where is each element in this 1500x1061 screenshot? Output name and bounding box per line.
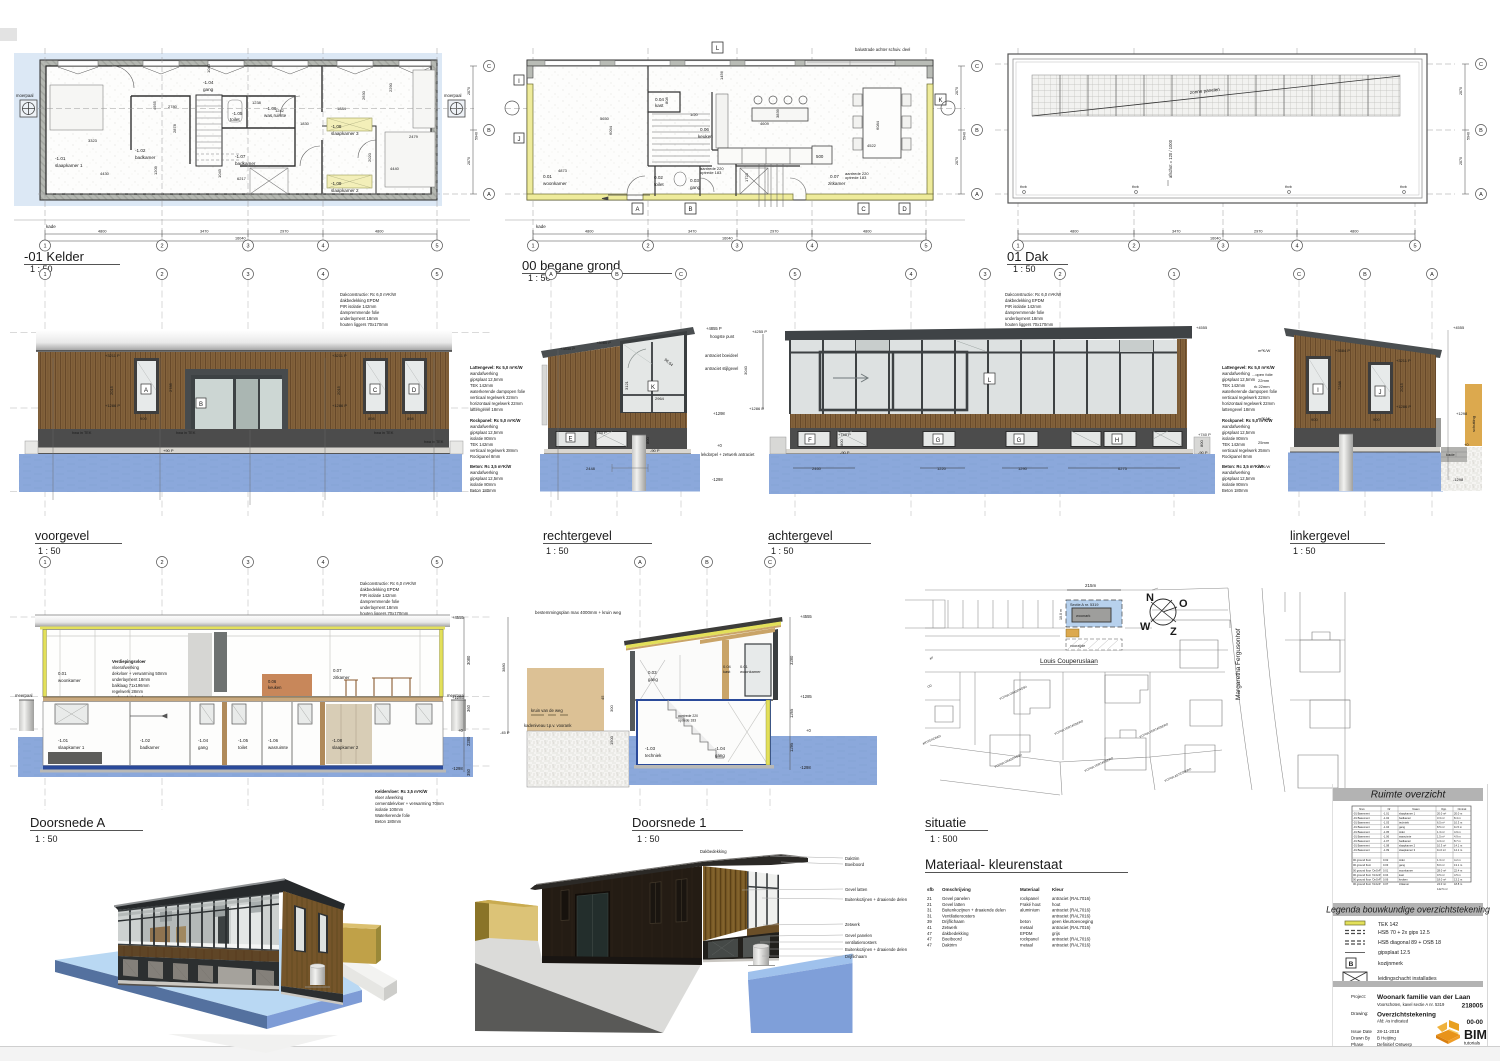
svg-text:B: B bbox=[705, 560, 709, 566]
svg-text:-1.06: -1.06 bbox=[1383, 834, 1390, 838]
svg-text:wandafwerking: wandafwerking bbox=[1222, 371, 1251, 376]
svg-text:verticaal regelwerk 22mm: verticaal regelwerk 22mm bbox=[470, 395, 518, 400]
svg-text:4.3 m²: 4.3 m² bbox=[1437, 839, 1445, 843]
svg-text:gang: gang bbox=[715, 753, 725, 758]
svg-text:antraciet (RAL7016): antraciet (RAL7016) bbox=[1052, 913, 1091, 918]
svg-text:1: 1 bbox=[1172, 272, 1175, 278]
svg-text:39: 39 bbox=[927, 919, 932, 924]
svg-text:tutorials: tutorials bbox=[1464, 1041, 1481, 1046]
svg-text:afschot = 120 / 1000: afschot = 120 / 1000 bbox=[1168, 139, 1173, 178]
svg-text:Louis Couperuslaan: Louis Couperuslaan bbox=[1040, 658, 1098, 665]
svg-text:0.02: 0.02 bbox=[654, 175, 663, 180]
svg-text:+3584 P: +3584 P bbox=[1335, 348, 1350, 353]
svg-text:HSB diagonal 89 + OSB 18: HSB diagonal 89 + OSB 18 bbox=[1378, 940, 1441, 946]
svg-text:badkamer: badkamer bbox=[135, 155, 156, 160]
svg-text:+0: +0 bbox=[806, 728, 811, 733]
svg-text:4609: 4609 bbox=[760, 121, 770, 126]
svg-text:linkergevel: linkergevel bbox=[1290, 529, 1350, 543]
svg-text:10.0 m: 10.0 m bbox=[1059, 609, 1063, 620]
svg-text:keuken: keuken bbox=[268, 685, 282, 690]
svg-text:isolatie 80mm: isolatie 80mm bbox=[1222, 482, 1248, 487]
svg-text:slaapkamer 2: slaapkamer 2 bbox=[331, 188, 359, 193]
svg-text:142.5 m²: 142.5 m² bbox=[1437, 887, 1448, 891]
svg-text:K: K bbox=[651, 385, 655, 391]
svg-text:toilet: toilet bbox=[230, 117, 240, 122]
svg-text:Dakconstructie: Rc 6,0 m²K/W: Dakconstructie: Rc 6,0 m²K/W bbox=[360, 581, 416, 586]
svg-text:5940: 5940 bbox=[1467, 132, 1471, 140]
svg-text:2: 2 bbox=[160, 244, 163, 250]
svg-text:900: 900 bbox=[1373, 417, 1380, 422]
svg-text:1456: 1456 bbox=[719, 70, 724, 80]
svg-text:badkamer: badkamer bbox=[1399, 839, 1411, 843]
svg-text:vloerafwerking: vloerafwerking bbox=[112, 665, 140, 670]
svg-text:5: 5 bbox=[435, 560, 438, 566]
svg-text:47: 47 bbox=[927, 942, 932, 947]
svg-text:-1.09: -1.09 bbox=[331, 181, 342, 186]
svg-text:Z: Z bbox=[1170, 626, 1177, 638]
svg-text:antraciet (RAL7016): antraciet (RAL7016) bbox=[1052, 925, 1091, 930]
svg-text:G: G bbox=[936, 438, 941, 444]
svg-text:4440: 4440 bbox=[390, 166, 400, 171]
svg-text:EPDM: EPDM bbox=[1020, 931, 1033, 936]
svg-text:TEK 142mm: TEK 142mm bbox=[1222, 383, 1246, 388]
svg-text:1.3 m²: 1.3 m² bbox=[1437, 830, 1445, 834]
svg-text:kade: kade bbox=[46, 224, 56, 229]
svg-text:2870: 2870 bbox=[955, 87, 959, 95]
svg-text:dakbedekking EPDM: dakbedekking EPDM bbox=[360, 587, 400, 592]
svg-text:Boeiboord: Boeiboord bbox=[845, 862, 865, 867]
svg-text:moerpaal: moerpaal bbox=[16, 93, 34, 98]
svg-text:-1298: -1298 bbox=[712, 477, 723, 482]
svg-text:Drawing:: Drawing: bbox=[1351, 1011, 1368, 1016]
svg-text:gang: gang bbox=[648, 677, 658, 682]
svg-text:3470: 3470 bbox=[688, 230, 696, 234]
svg-text:hoogste punt: hoogste punt bbox=[710, 334, 735, 339]
svg-text:0.03: 0.03 bbox=[1383, 863, 1389, 867]
svg-text:m²K/W: m²K/W bbox=[1258, 464, 1270, 469]
svg-text:gang: gang bbox=[1399, 826, 1405, 829]
svg-text:-01 Basement: -01 Basement bbox=[1353, 816, 1370, 820]
svg-text:dampremmende folie: dampremmende folie bbox=[340, 310, 380, 315]
svg-text:Drijflichaam: Drijflichaam bbox=[845, 954, 867, 959]
svg-text:1209: 1209 bbox=[153, 165, 158, 175]
svg-text:dampremmende folie: dampremmende folie bbox=[360, 599, 400, 604]
svg-text:-01 Basement: -01 Basement bbox=[1353, 839, 1370, 843]
svg-text:00 ground floor 'OnGrF': 00 ground floor 'OnGrF' bbox=[1353, 873, 1382, 877]
svg-text:11.5 m: 11.5 m bbox=[1454, 825, 1463, 829]
svg-text:2870: 2870 bbox=[1459, 87, 1463, 95]
svg-text:beton: beton bbox=[1020, 919, 1031, 924]
svg-text:-1.02: -1.02 bbox=[140, 738, 151, 743]
svg-text:11.0 m²: 11.0 m² bbox=[1437, 848, 1446, 852]
svg-text:voorzijde: voorzijde bbox=[1070, 644, 1085, 648]
svg-text:Omschrijving: Omschrijving bbox=[942, 887, 971, 892]
svg-text:2964: 2964 bbox=[655, 396, 665, 401]
svg-text:+1286 P: +1286 P bbox=[105, 403, 120, 408]
svg-text:aluminium: aluminium bbox=[1020, 908, 1040, 913]
svg-text:wasruimte: wasruimte bbox=[1399, 834, 1412, 838]
svg-text:2: 2 bbox=[160, 560, 163, 566]
svg-text:2280: 2280 bbox=[466, 736, 471, 746]
svg-text:rechtergevel: rechtergevel bbox=[543, 529, 612, 543]
svg-text:aantrede 220: aantrede 220 bbox=[678, 714, 698, 718]
svg-text:13.2 m: 13.2 m bbox=[1454, 878, 1463, 882]
svg-text:verticaal regelwerk 28mm: verticaal regelwerk 28mm bbox=[470, 448, 518, 453]
svg-text:-1.04: -1.04 bbox=[1383, 825, 1390, 829]
svg-text:1238: 1238 bbox=[252, 100, 262, 105]
svg-text:2970: 2970 bbox=[280, 230, 288, 234]
svg-text:-1.07: -1.07 bbox=[1383, 839, 1390, 843]
svg-text:2630: 2630 bbox=[361, 90, 366, 100]
svg-text:01 Dak: 01 Dak bbox=[1007, 249, 1049, 264]
svg-text:1 : 50: 1 : 50 bbox=[546, 546, 569, 556]
svg-text:antraciet boeideel: antraciet boeideel bbox=[705, 353, 738, 358]
svg-text:Phase: Phase bbox=[1351, 1042, 1364, 1047]
svg-text:+0: +0 bbox=[458, 728, 463, 733]
svg-text:-1298: -1298 bbox=[800, 765, 811, 770]
svg-text:rockpanel: rockpanel bbox=[1020, 896, 1039, 901]
svg-text:Dakconstructie: Rc 6,0 m²K/W: Dakconstructie: Rc 6,0 m²K/W bbox=[1005, 292, 1061, 297]
svg-text:-1.02: -1.02 bbox=[1383, 816, 1390, 820]
svg-text:grijs: grijs bbox=[1052, 931, 1060, 936]
svg-text:900: 900 bbox=[1311, 417, 1318, 422]
svg-text:A: A bbox=[1479, 192, 1483, 198]
svg-text:Fraké hout: Fraké hout bbox=[1020, 902, 1041, 907]
svg-text:-1.05: -1.05 bbox=[232, 111, 243, 116]
svg-text:6084: 6084 bbox=[875, 120, 880, 130]
svg-text:0.01: 0.01 bbox=[58, 671, 67, 676]
svg-text:28.0 m²: 28.0 m² bbox=[1437, 868, 1446, 872]
svg-text:thvb: thvb bbox=[1400, 185, 1407, 189]
svg-text:metaal: metaal bbox=[1020, 942, 1033, 947]
svg-text:B: B bbox=[615, 272, 619, 278]
svg-text:0.06: 0.06 bbox=[268, 679, 277, 684]
svg-text:4: 4 bbox=[1295, 244, 1298, 250]
svg-text:-1.08: -1.08 bbox=[332, 738, 343, 743]
svg-text:badkamer: badkamer bbox=[1399, 816, 1411, 820]
svg-text:hout: hout bbox=[1052, 902, 1061, 907]
svg-text:1 : 50: 1 : 50 bbox=[637, 834, 660, 844]
svg-text:A: A bbox=[975, 192, 979, 198]
svg-text:waterkerende dampopen folie: waterkerende dampopen folie bbox=[470, 389, 526, 394]
svg-text:techniek: techniek bbox=[1399, 821, 1410, 825]
svg-text:meerpaal: meerpaal bbox=[15, 693, 33, 698]
svg-text:2: 2 bbox=[646, 244, 649, 250]
svg-text:3470: 3470 bbox=[1172, 230, 1180, 234]
svg-text:D: D bbox=[902, 207, 907, 213]
svg-text:antraciet stijlgevel: antraciet stijlgevel bbox=[705, 366, 738, 371]
svg-text:-1.04: -1.04 bbox=[198, 738, 209, 743]
svg-text:8.7 m: 8.7 m bbox=[1454, 839, 1461, 843]
svg-text:3: 3 bbox=[246, 244, 249, 250]
svg-text:1723: 1723 bbox=[744, 172, 749, 182]
svg-text:OD: OD bbox=[927, 683, 934, 689]
svg-text:0.06: 0.06 bbox=[700, 127, 709, 132]
svg-text:-1298: -1298 bbox=[452, 766, 463, 771]
svg-text:28-11-2018: 28-11-2018 bbox=[1377, 1029, 1400, 1034]
svg-text:Waterkerende folie: Waterkerende folie bbox=[375, 813, 411, 818]
svg-text:ARTISTICRAD: ARTISTICRAD bbox=[922, 733, 943, 745]
svg-text:K: K bbox=[938, 98, 942, 104]
svg-text:C: C bbox=[679, 272, 683, 278]
svg-text:techniek: techniek bbox=[645, 753, 662, 758]
svg-text:800: 800 bbox=[645, 437, 650, 444]
svg-text:8.4 m: 8.4 m bbox=[1454, 816, 1461, 820]
svg-text:-1.05: -1.05 bbox=[1383, 830, 1390, 834]
svg-text:VOTGA ASTESSERO: VOTGA ASTESSERO bbox=[1164, 767, 1193, 783]
svg-text:18.0 m²: 18.0 m² bbox=[1437, 878, 1446, 882]
svg-text:moerpaal: moerpaal bbox=[444, 93, 462, 98]
svg-text:rk 22mm: rk 22mm bbox=[1254, 384, 1270, 389]
svg-text:thvb: thvb bbox=[1132, 185, 1139, 189]
svg-text:slaapkamer 1: slaapkamer 1 bbox=[55, 163, 83, 168]
svg-text:Rockpanel 8mm: Rockpanel 8mm bbox=[1222, 454, 1253, 459]
svg-text:underlayment 18mm: underlayment 18mm bbox=[112, 677, 151, 682]
svg-text:gang: gang bbox=[690, 185, 701, 190]
svg-text:optrede 183: optrede 183 bbox=[678, 719, 696, 723]
svg-text:+1286 P: +1286 P bbox=[749, 406, 764, 411]
svg-text:1 : 500: 1 : 500 bbox=[930, 834, 958, 844]
svg-text:J: J bbox=[1379, 390, 1382, 396]
svg-text:3: 3 bbox=[735, 244, 738, 250]
svg-text:898: 898 bbox=[407, 416, 414, 421]
svg-text:2870: 2870 bbox=[1459, 157, 1463, 165]
svg-text:+3211 P: +3211 P bbox=[105, 353, 120, 358]
svg-text:4800: 4800 bbox=[585, 230, 593, 234]
svg-text:thvb: thvb bbox=[1020, 185, 1027, 189]
svg-text:balustrade achter schuiv. deel: balustrade achter schuiv. deel bbox=[855, 47, 910, 52]
svg-text:VOTGA VERTASSERO: VOTGA VERTASSERO bbox=[1139, 722, 1170, 739]
svg-text:balklaag 71x196mm: balklaag 71x196mm bbox=[112, 683, 150, 688]
svg-text:-01 Basement: -01 Basement bbox=[1353, 844, 1370, 848]
svg-text:4430: 4430 bbox=[100, 171, 110, 176]
svg-text:Lattengevel: Rc 5,0 m²K/W: Lattengevel: Rc 5,0 m²K/W bbox=[470, 365, 523, 370]
svg-text:+90 P: +90 P bbox=[163, 448, 174, 453]
svg-text:Gevel latten: Gevel latten bbox=[942, 902, 966, 907]
svg-text:lattengevel 18mm: lattengevel 18mm bbox=[470, 407, 504, 412]
svg-text:+3830 P: +3830 P bbox=[560, 346, 575, 351]
svg-text:toilet: toilet bbox=[1399, 830, 1405, 834]
svg-text:4800: 4800 bbox=[1070, 230, 1078, 234]
svg-text:47: 47 bbox=[927, 931, 932, 936]
svg-text:N: N bbox=[1146, 592, 1154, 604]
svg-text:2970: 2970 bbox=[770, 230, 778, 234]
svg-text:+1298: +1298 bbox=[713, 411, 725, 416]
svg-text:1 : 50: 1 : 50 bbox=[35, 834, 58, 844]
svg-text:+1285: +1285 bbox=[452, 695, 464, 700]
svg-text:dakbedekking EPDM: dakbedekking EPDM bbox=[1005, 298, 1045, 303]
svg-text:Gevel panelen: Gevel panelen bbox=[942, 896, 970, 901]
svg-text:22mm: 22mm bbox=[1258, 378, 1270, 383]
svg-text:optrede 183: optrede 183 bbox=[700, 170, 722, 175]
svg-text:badkamer: badkamer bbox=[140, 745, 160, 750]
svg-text:O: O bbox=[1179, 598, 1188, 610]
svg-text:900: 900 bbox=[140, 416, 147, 421]
svg-text:gipsplaat 12,5mm: gipsplaat 12,5mm bbox=[1222, 430, 1256, 435]
svg-text:A: A bbox=[1430, 272, 1434, 278]
svg-text:-90 P: -90 P bbox=[840, 450, 850, 455]
svg-text:Ruimte overzicht: Ruimte overzicht bbox=[1371, 790, 1447, 801]
svg-text:0.07: 0.07 bbox=[830, 174, 839, 179]
svg-text:woonkamer: woonkamer bbox=[1399, 868, 1413, 872]
svg-text:2020: 2020 bbox=[367, 152, 372, 162]
svg-text:woonkamer: woonkamer bbox=[740, 669, 761, 674]
svg-text:C: C bbox=[861, 207, 866, 213]
svg-text:5: 5 bbox=[435, 272, 438, 278]
svg-text:hwa in TEK: hwa in TEK bbox=[72, 431, 92, 435]
svg-text:+4255 P: +4255 P bbox=[752, 329, 767, 334]
svg-text:5940: 5940 bbox=[963, 132, 967, 140]
svg-text:Daktrim: Daktrim bbox=[942, 942, 957, 947]
svg-text:Verdiepingsvloer: Verdiepingsvloer bbox=[112, 659, 146, 664]
svg-text:Naam: Naam bbox=[1412, 807, 1420, 811]
svg-text:2015: 2015 bbox=[1399, 382, 1404, 392]
svg-text:F: F bbox=[808, 438, 812, 444]
svg-text:wandafwerking: wandafwerking bbox=[470, 424, 499, 429]
svg-text:Daktrim: Daktrim bbox=[845, 856, 860, 861]
svg-text:0.04: 0.04 bbox=[655, 97, 664, 102]
svg-text:C: C bbox=[768, 560, 772, 566]
svg-text:gipsplaat 12,5mm: gipsplaat 12,5mm bbox=[470, 476, 504, 481]
svg-text:-1.08: -1.08 bbox=[331, 124, 342, 129]
svg-text:Kleur: Kleur bbox=[1052, 887, 1064, 892]
svg-text:00 ground floor: 00 ground floor bbox=[1353, 858, 1371, 862]
svg-text:dakbedekking: dakbedekking bbox=[942, 931, 969, 936]
svg-text:16040: 16040 bbox=[722, 237, 733, 241]
svg-text:gipsplaat 12,5mm: gipsplaat 12,5mm bbox=[470, 377, 504, 382]
svg-text:Sectie A nr. 5319: Sectie A nr. 5319 bbox=[1070, 603, 1099, 607]
svg-text:Project:: Project: bbox=[1351, 994, 1366, 999]
svg-text:Buitenkozijnen + draaiende del: Buitenkozijnen + draaiende delen bbox=[845, 897, 908, 902]
svg-text:+4555: +4555 bbox=[1453, 325, 1465, 330]
svg-text:Dakconstructie: Rc 6,0 m²K/W: Dakconstructie: Rc 6,0 m²K/W bbox=[340, 292, 396, 297]
svg-text:VOTGA VERTASSERO: VOTGA VERTASSERO bbox=[1054, 719, 1085, 736]
svg-text:1220: 1220 bbox=[937, 466, 947, 471]
svg-text:A: A bbox=[638, 560, 642, 566]
svg-text:kade: kade bbox=[1446, 452, 1455, 457]
svg-text:kade: kade bbox=[536, 224, 546, 229]
svg-text:kadeniveau t.p.v. voorank: kadeniveau t.p.v. voorank bbox=[524, 723, 572, 728]
svg-text:360: 360 bbox=[466, 704, 471, 712]
svg-text:4522: 4522 bbox=[867, 143, 877, 148]
svg-text:wasruimte: wasruimte bbox=[268, 745, 289, 750]
svg-text:metaal: metaal bbox=[1020, 925, 1033, 930]
svg-text:B: B bbox=[199, 402, 203, 408]
svg-text:+0: +0 bbox=[717, 443, 722, 448]
svg-text:2: 2 bbox=[1132, 244, 1135, 250]
svg-text:-01 Basement: -01 Basement bbox=[1353, 848, 1370, 852]
svg-text:4: 4 bbox=[321, 560, 324, 566]
svg-text:PIR isolatie 142mm: PIR isolatie 142mm bbox=[340, 304, 377, 309]
svg-text:J: J bbox=[518, 137, 521, 143]
svg-text:1 : 50: 1 : 50 bbox=[771, 546, 794, 556]
svg-text:-01 Basement: -01 Basement bbox=[1353, 821, 1370, 825]
svg-text:-1.03: -1.03 bbox=[1383, 821, 1390, 825]
svg-text:woonkamer: woonkamer bbox=[543, 181, 567, 186]
svg-text:Overzichtstekening: Overzichtstekening bbox=[1377, 1012, 1436, 1019]
svg-text:898: 898 bbox=[368, 416, 375, 421]
svg-text:D: D bbox=[412, 388, 417, 394]
svg-text:wandafwerking: wandafwerking bbox=[1222, 424, 1251, 429]
svg-text:3470: 3470 bbox=[200, 230, 208, 234]
svg-text:6217: 6217 bbox=[237, 176, 247, 181]
svg-text:A: A bbox=[144, 388, 148, 394]
svg-text:0.01: 0.01 bbox=[543, 174, 552, 179]
svg-text:Opp.: Opp. bbox=[1441, 807, 1447, 811]
svg-text:dekvloer + verwarming 50mm: dekvloer + verwarming 50mm bbox=[112, 671, 168, 676]
svg-text:Definitief Ontwerp: Definitief Ontwerp bbox=[1377, 1042, 1412, 1047]
svg-text:0.04: 0.04 bbox=[1383, 873, 1389, 877]
svg-text:+4555: +4555 bbox=[800, 614, 812, 619]
svg-text:underlayment 18mm: underlayment 18mm bbox=[360, 605, 399, 610]
svg-text:...open folie: ...open folie bbox=[1252, 372, 1273, 377]
svg-text:3323: 3323 bbox=[88, 138, 98, 143]
svg-text:regelwerk 28mm: regelwerk 28mm bbox=[112, 689, 143, 694]
svg-text:500: 500 bbox=[816, 154, 824, 159]
svg-text:2870: 2870 bbox=[955, 157, 959, 165]
svg-text:gipsplaat 12,5mm: gipsplaat 12,5mm bbox=[1222, 476, 1256, 481]
svg-text:800: 800 bbox=[839, 439, 844, 446]
svg-text:+740 P: +740 P bbox=[594, 430, 607, 435]
svg-text:C: C bbox=[1297, 272, 1301, 278]
svg-text:3: 3 bbox=[983, 272, 986, 278]
svg-text:B: B bbox=[1349, 961, 1354, 968]
svg-text:1830: 1830 bbox=[300, 121, 310, 126]
svg-text:16040: 16040 bbox=[1210, 237, 1221, 241]
svg-text:Dakbedekking: Dakbedekking bbox=[700, 849, 727, 854]
svg-text:4.5 m: 4.5 m bbox=[1454, 873, 1461, 877]
svg-text:5940: 5940 bbox=[475, 132, 479, 140]
svg-text:3121: 3121 bbox=[624, 380, 629, 390]
svg-text:zitkamer: zitkamer bbox=[333, 675, 350, 680]
svg-text:10.3 m: 10.3 m bbox=[1454, 821, 1463, 825]
svg-text:1: 1 bbox=[531, 244, 534, 250]
svg-text:G: G bbox=[1017, 438, 1022, 444]
svg-text:2: 2 bbox=[1058, 272, 1061, 278]
svg-text:C: C bbox=[373, 388, 378, 394]
svg-text:-01 Kelder: -01 Kelder bbox=[24, 249, 85, 264]
svg-text:PIR isolatie 142mm: PIR isolatie 142mm bbox=[360, 593, 397, 598]
svg-text:B: B bbox=[487, 128, 491, 134]
svg-text:TEK 142mm: TEK 142mm bbox=[470, 383, 494, 388]
svg-text:kast: kast bbox=[1399, 873, 1404, 877]
svg-text:1: 1 bbox=[43, 560, 46, 566]
svg-text:41: 41 bbox=[927, 925, 932, 930]
svg-text:VOTGA GRASPASSO: VOTGA GRASPASSO bbox=[994, 752, 1023, 768]
svg-text:6094: 6094 bbox=[608, 125, 613, 135]
svg-text:1 : 50: 1 : 50 bbox=[38, 546, 61, 556]
svg-text:Issue Date: Issue Date bbox=[1351, 1029, 1373, 1034]
svg-text:-01 Basement: -01 Basement bbox=[1353, 834, 1370, 838]
svg-text:Zetwerk: Zetwerk bbox=[942, 925, 958, 930]
svg-text:slaapkamer 3: slaapkamer 3 bbox=[331, 131, 359, 136]
svg-text:2290: 2290 bbox=[388, 82, 393, 92]
svg-text:Gevel panelen: Gevel panelen bbox=[845, 933, 873, 938]
svg-text:00 ground floor: 00 ground floor bbox=[1353, 863, 1371, 867]
svg-text:4873: 4873 bbox=[558, 168, 568, 173]
svg-text:H: H bbox=[1115, 438, 1119, 444]
svg-text:slaapkamer 3: slaapkamer 3 bbox=[1399, 848, 1416, 852]
svg-text:Gevel latten: Gevel latten bbox=[845, 887, 868, 892]
svg-text:slaapkamer 2: slaapkamer 2 bbox=[1399, 844, 1416, 848]
svg-text:3: 3 bbox=[246, 560, 249, 566]
svg-text:antraciet (RAL7016): antraciet (RAL7016) bbox=[1052, 896, 1091, 901]
svg-text:wandafwerking: wandafwerking bbox=[470, 371, 499, 376]
svg-text:1 : 50: 1 : 50 bbox=[1293, 546, 1316, 556]
svg-text:Legenda bouwkundige overzichts: Legenda bouwkundige overzichtstekening bbox=[1326, 905, 1490, 915]
svg-text:Buitenkozijnen + draaiende del: Buitenkozijnen + draaiende delen bbox=[845, 947, 908, 952]
svg-text:21: 21 bbox=[927, 902, 932, 907]
